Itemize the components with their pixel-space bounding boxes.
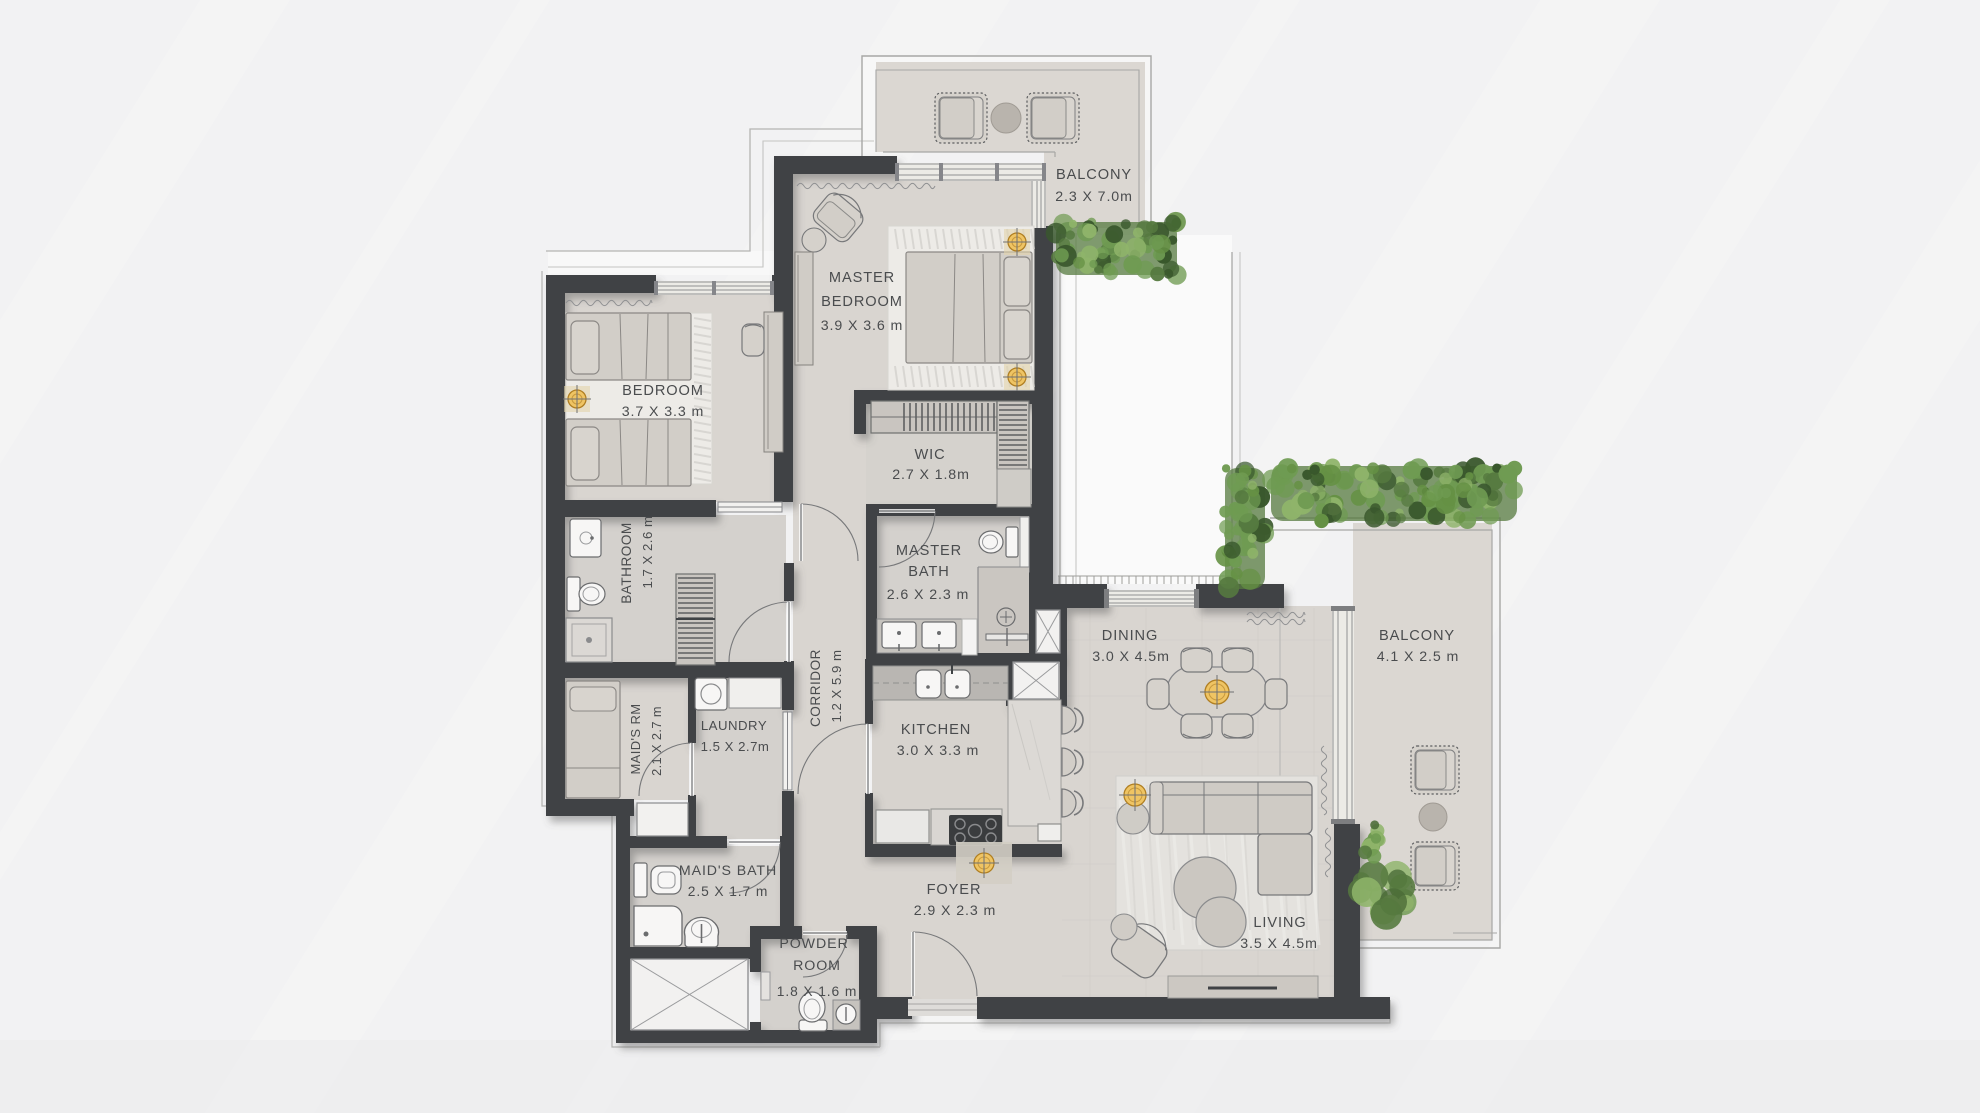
svg-text:3.7 X 3.3 m: 3.7 X 3.3 m: [622, 404, 704, 420]
svg-text:DINING: DINING: [1102, 628, 1158, 644]
svg-text:BEDROOM: BEDROOM: [622, 383, 704, 399]
svg-text:MAID'S BATH: MAID'S BATH: [679, 863, 777, 879]
svg-text:POWDER: POWDER: [779, 936, 848, 952]
svg-text:CORRIDOR: CORRIDOR: [808, 649, 823, 727]
svg-text:2.1 X 2.7 m: 2.1 X 2.7 m: [649, 706, 664, 776]
svg-text:4.1 X 2.5 m: 4.1 X 2.5 m: [1377, 649, 1459, 665]
svg-text:MASTER: MASTER: [829, 270, 895, 286]
svg-text:2.5 X 1.7 m: 2.5 X 1.7 m: [688, 884, 768, 899]
svg-text:2.7 X 1.8m: 2.7 X 1.8m: [892, 467, 970, 483]
svg-text:BEDROOM: BEDROOM: [821, 294, 903, 310]
svg-text:2.3 X 7.0m: 2.3 X 7.0m: [1055, 189, 1133, 205]
svg-text:BALCONY: BALCONY: [1056, 167, 1132, 183]
svg-text:ROOM: ROOM: [793, 958, 841, 974]
svg-text:1.5 X 2.7m: 1.5 X 2.7m: [701, 739, 770, 754]
svg-text:BATHROOM: BATHROOM: [619, 522, 634, 604]
svg-text:MASTER: MASTER: [896, 543, 962, 559]
svg-text:FOYER: FOYER: [927, 882, 982, 898]
svg-text:BALCONY: BALCONY: [1379, 628, 1455, 644]
svg-text:MAID'S RM: MAID'S RM: [628, 703, 643, 774]
svg-text:1.2 X 5.9 m: 1.2 X 5.9 m: [829, 650, 844, 723]
svg-text:LIVING: LIVING: [1253, 915, 1306, 931]
svg-text:LAUNDRY: LAUNDRY: [701, 718, 767, 733]
svg-text:2.9 X 2.3 m: 2.9 X 2.3 m: [914, 903, 996, 919]
svg-text:3.9 X 3.6 m: 3.9 X 3.6 m: [821, 318, 903, 334]
svg-text:1.8 X 1.6 m: 1.8 X 1.6 m: [777, 984, 857, 999]
svg-text:BATH: BATH: [908, 564, 949, 580]
svg-text:2.6 X 2.3 m: 2.6 X 2.3 m: [887, 587, 969, 603]
svg-text:WIC: WIC: [914, 447, 945, 463]
svg-text:1.7 X 2.6 m: 1.7 X 2.6 m: [640, 516, 655, 589]
svg-text:3.0 X 4.5m: 3.0 X 4.5m: [1092, 649, 1170, 665]
svg-text:KITCHEN: KITCHEN: [901, 722, 971, 738]
svg-text:3.5 X 4.5m: 3.5 X 4.5m: [1240, 936, 1318, 952]
svg-text:3.0 X 3.3 m: 3.0 X 3.3 m: [897, 743, 979, 759]
